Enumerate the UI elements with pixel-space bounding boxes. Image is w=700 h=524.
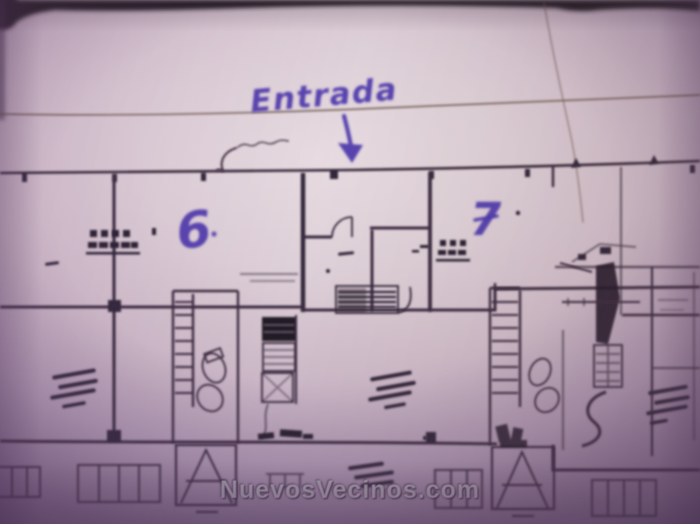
right-kitchen-fixtures [560, 244, 700, 446]
down-arrow-icon [338, 116, 363, 163]
unit-6-annotation: 6 [174, 199, 215, 260]
floor-plan-drawing: Entrada 6 7 [0, 0, 700, 524]
drain-pipe [582, 392, 606, 446]
curved-arrow-icon [217, 140, 288, 171]
paper-crease [544, 2, 583, 222]
watermark: NuevosVecinos.com [0, 476, 700, 505]
entrance-annotation: Entrada [249, 71, 399, 120]
handwritten-annotations: Entrada 6 7 [174, 71, 502, 260]
pencil-lines [0, 2, 700, 222]
floor-plan-photo: Entrada 6 7 NuevosVecinos.com [0, 0, 700, 524]
left-kitchen-fixtures [240, 274, 298, 438]
door-swing [332, 217, 352, 237]
